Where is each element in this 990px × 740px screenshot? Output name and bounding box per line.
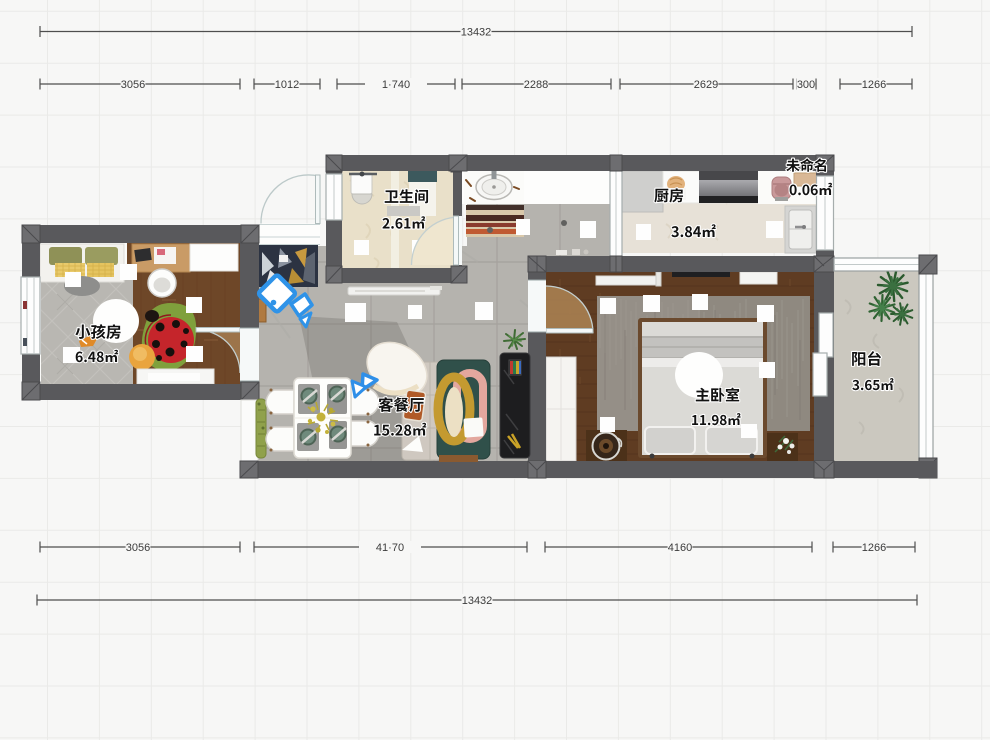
svg-text:1266: 1266 — [862, 79, 886, 91]
svg-text:3056: 3056 — [121, 79, 145, 91]
svg-text:13432: 13432 — [461, 27, 492, 39]
svg-text:1266: 1266 — [862, 542, 886, 554]
svg-text:1012: 1012 — [275, 79, 299, 91]
svg-text:2288: 2288 — [524, 79, 548, 91]
svg-text:1·740: 1·740 — [382, 79, 410, 91]
svg-text:13432: 13432 — [462, 595, 493, 607]
svg-text:300: 300 — [797, 79, 815, 91]
svg-text:41·70: 41·70 — [376, 542, 404, 554]
svg-text:4160: 4160 — [668, 542, 692, 554]
svg-text:2629: 2629 — [694, 79, 718, 91]
svg-text:3056: 3056 — [126, 542, 150, 554]
